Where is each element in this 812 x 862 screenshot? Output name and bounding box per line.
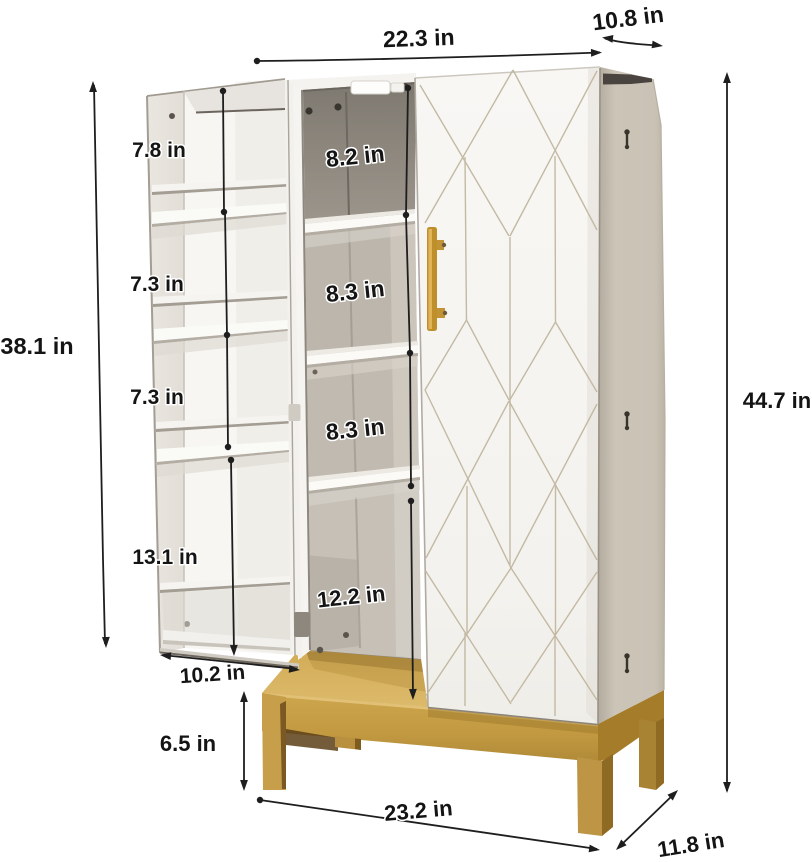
svg-text:44.7 in: 44.7 in	[743, 388, 811, 413]
svg-text:7.3 in: 7.3 in	[130, 386, 184, 409]
svg-text:38.1 in: 38.1 in	[0, 333, 73, 359]
svg-text:7.8 in: 7.8 in	[132, 139, 186, 162]
svg-text:13.1 in: 13.1 in	[132, 546, 197, 569]
svg-text:10.2 in: 10.2 in	[179, 661, 246, 689]
svg-text:6.5 in: 6.5 in	[160, 731, 216, 756]
svg-text:22.3 in: 22.3 in	[382, 24, 454, 52]
svg-text:7.3 in: 7.3 in	[130, 273, 184, 296]
